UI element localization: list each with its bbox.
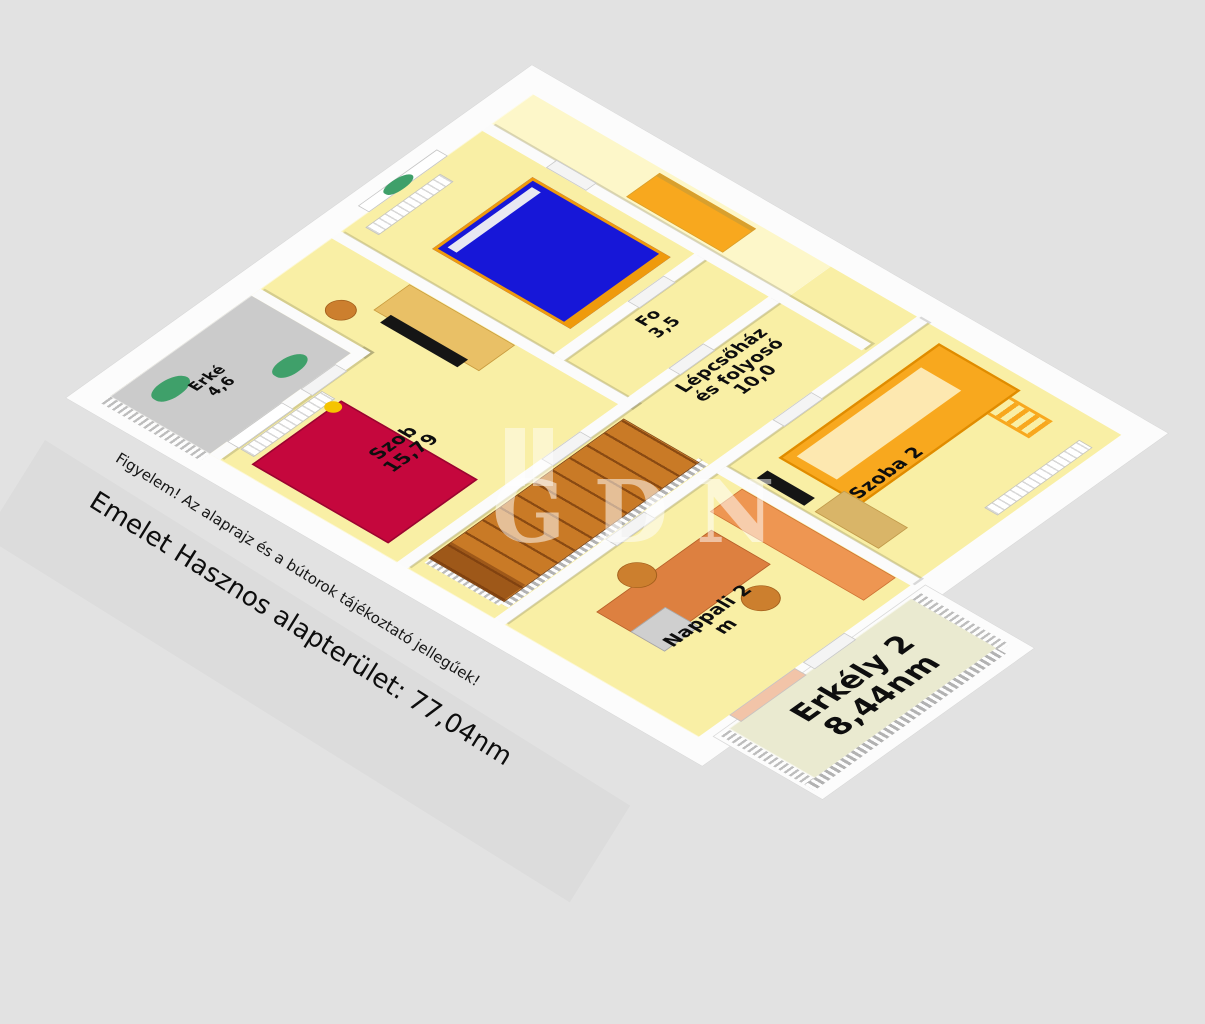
watermark-text: GDN [492, 462, 803, 563]
floorplan-scene: Erké 4,6 Szob 15,79 Fo 3,5 Lépcsőház és … [62, 44, 1205, 828]
floorplan-render: Erké 4,6 Szob 15,79 Fo 3,5 Lépcsőház és … [0, 0, 1205, 1024]
